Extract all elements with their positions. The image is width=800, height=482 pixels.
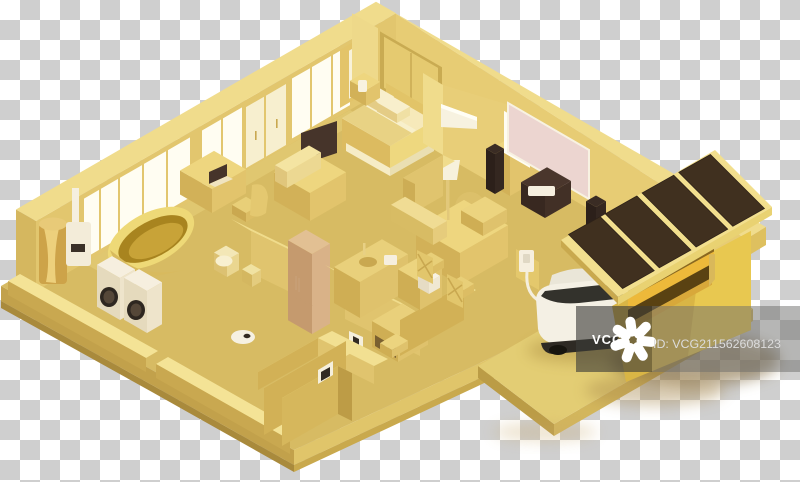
svg-text:VCG: VCG bbox=[592, 332, 623, 347]
svg-text:ID: VCG211562608123: ID: VCG211562608123 bbox=[653, 337, 781, 351]
